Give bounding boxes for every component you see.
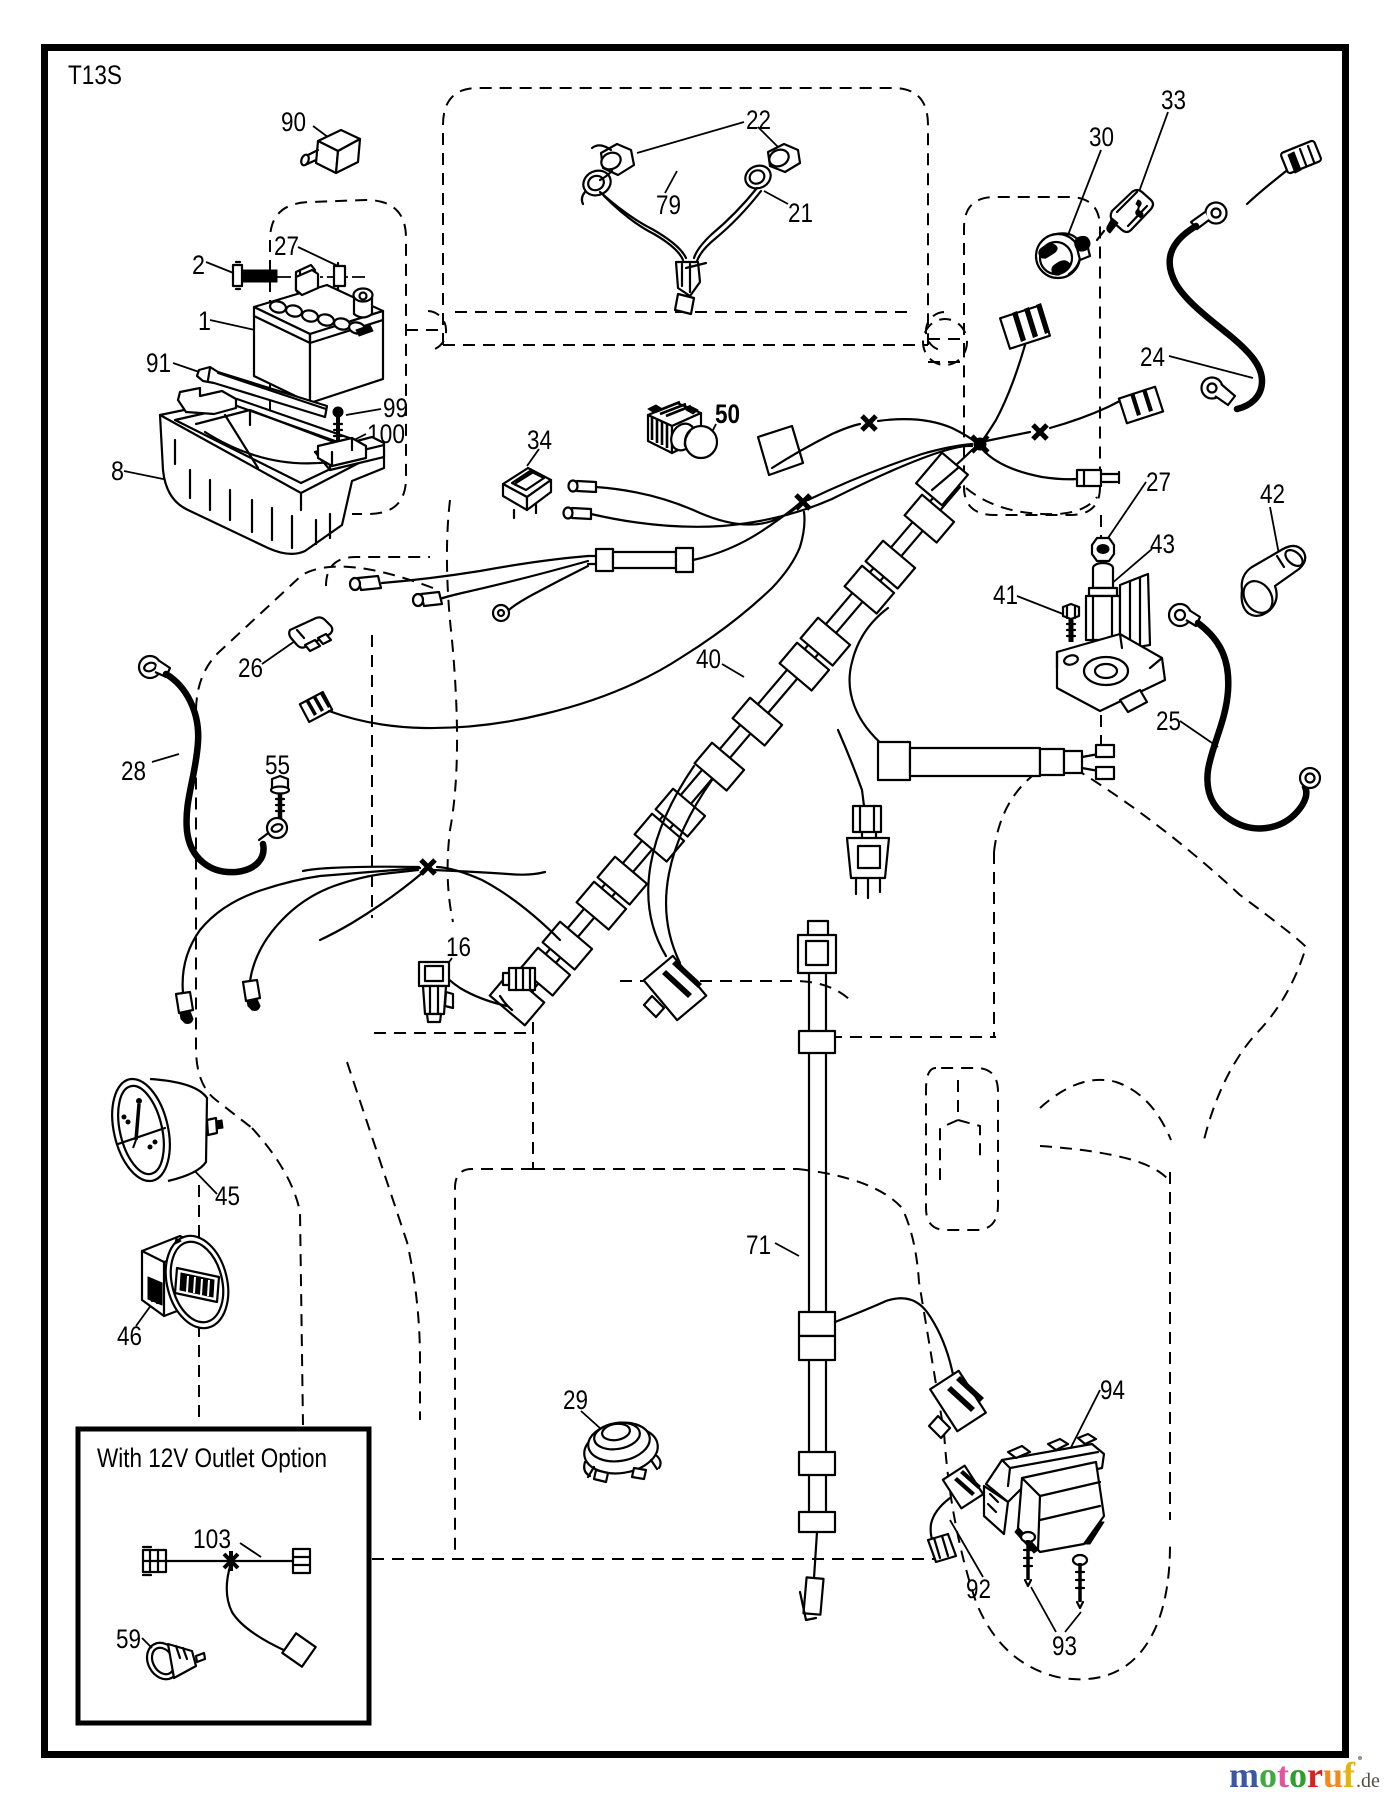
svg-text:16: 16 (446, 932, 471, 962)
svg-text:103: 103 (193, 1524, 231, 1554)
svg-text:2: 2 (192, 250, 205, 280)
svg-text:59: 59 (116, 1624, 141, 1654)
svg-text:.de: .de (1356, 1770, 1380, 1792)
svg-text:43: 43 (1150, 529, 1175, 559)
svg-text:30: 30 (1089, 122, 1114, 152)
svg-text:motoruf: motoruf (1229, 1755, 1356, 1795)
svg-text:50: 50 (715, 399, 740, 429)
svg-text:27: 27 (274, 231, 299, 261)
svg-text:90: 90 (281, 107, 306, 137)
svg-text:21: 21 (788, 198, 813, 228)
svg-text:93: 93 (1052, 1631, 1077, 1661)
svg-text:79: 79 (656, 190, 681, 220)
svg-text:22: 22 (746, 105, 771, 135)
svg-text:26: 26 (238, 653, 263, 683)
svg-text:41: 41 (993, 580, 1018, 610)
svg-text:34: 34 (527, 425, 552, 455)
svg-text:8: 8 (111, 456, 124, 486)
svg-text:71: 71 (746, 1230, 771, 1260)
svg-text:28: 28 (121, 756, 146, 786)
svg-text:91: 91 (146, 348, 171, 378)
svg-text:27: 27 (1146, 467, 1171, 497)
svg-text:1: 1 (198, 306, 211, 336)
svg-text:29: 29 (563, 1385, 588, 1415)
svg-text:25: 25 (1156, 706, 1181, 736)
svg-text:46: 46 (117, 1321, 142, 1351)
svg-text:With 12V Outlet Option: With 12V Outlet Option (97, 1443, 327, 1473)
svg-text:40: 40 (696, 644, 721, 674)
svg-text:55: 55 (265, 750, 290, 780)
svg-text:T13S: T13S (68, 60, 122, 90)
svg-text:45: 45 (215, 1181, 240, 1211)
svg-text:24: 24 (1140, 342, 1165, 372)
svg-text:33: 33 (1161, 85, 1186, 115)
svg-text:92: 92 (966, 1574, 991, 1604)
svg-text:94: 94 (1100, 1375, 1125, 1405)
svg-text:42: 42 (1260, 479, 1285, 509)
